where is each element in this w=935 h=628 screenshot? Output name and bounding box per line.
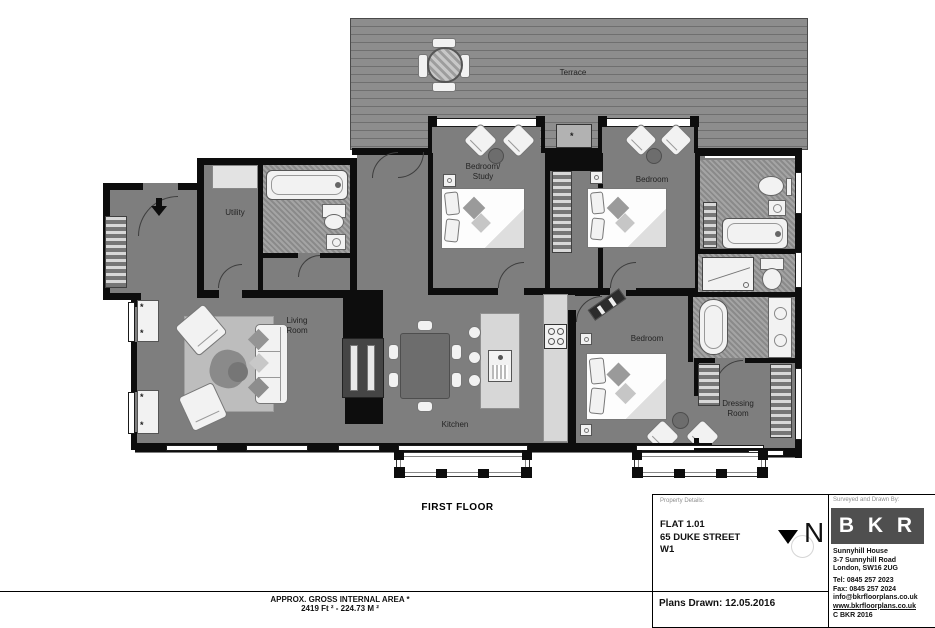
chair-icon: [388, 372, 399, 388]
bathtub-icon: [722, 218, 788, 249]
planter-icon: *: [556, 124, 592, 148]
window: [166, 445, 218, 451]
room-label-bedroom-study: Bedroom/Study: [450, 162, 516, 181]
wall: [745, 358, 800, 363]
terrace-table-top: [427, 47, 463, 83]
radiator-icon: [443, 174, 456, 187]
room-label-dressing: DressingRoom: [702, 399, 774, 418]
pillow: [444, 218, 460, 242]
address-line: Sunnyhill House: [833, 548, 933, 557]
plans-drawn: Plans Drawn: 12.05.2016: [659, 598, 809, 609]
wall: [131, 342, 137, 392]
dining-table-icon: [400, 333, 450, 399]
wall: [350, 158, 357, 298]
wall: [197, 290, 219, 298]
address-line: 3-7 Sunnyhill Road: [833, 557, 933, 566]
window-sill-plants: **: [137, 390, 159, 434]
bar-stool-icon: [468, 326, 481, 339]
terrace-table-icon: [418, 38, 472, 94]
tel: Tel: 0845 257 2023: [833, 577, 933, 586]
floor-title: FIRST FLOOR: [380, 503, 535, 513]
wall: [197, 158, 204, 298]
balcony-post: [674, 469, 685, 478]
radiator-icon: [590, 171, 603, 184]
freestanding-bathtub-icon: [699, 299, 728, 355]
chair-icon: [417, 401, 433, 412]
toilet-icon: [324, 214, 344, 230]
window: [398, 445, 528, 451]
copyright: C BKR 2016: [833, 612, 933, 619]
shower-icon: [702, 257, 754, 291]
website: www.bkrfloorplans.co.uk: [833, 603, 933, 612]
balcony-post: [521, 467, 532, 478]
room-label-bedroom-bottom: Bedroom: [612, 334, 682, 344]
wall: [178, 183, 197, 190]
wall: [688, 292, 693, 362]
kitchen-counter: [543, 294, 568, 442]
pillow: [589, 387, 607, 414]
room-label-bedroom-top: Bedroom: [620, 175, 684, 185]
bathtub-icon: [266, 170, 348, 200]
pillow: [444, 191, 460, 215]
radiator-icon: [580, 333, 592, 345]
area-line2: 2419 Ft ² - 224.73 M ²: [150, 604, 530, 613]
wall: [197, 158, 357, 165]
chair-icon: [451, 344, 462, 360]
window: [795, 368, 802, 440]
balcony-post: [394, 467, 405, 478]
balcony-post: [394, 450, 404, 460]
bay-window: [430, 118, 543, 127]
window-sill-plants: **: [137, 300, 159, 342]
toilet-cistern: [786, 178, 792, 196]
balcony-post: [716, 469, 727, 478]
sink-icon: [768, 200, 786, 216]
room-label-terrace: Terrace: [538, 68, 608, 78]
bay-window: [600, 118, 698, 127]
wall: [320, 253, 350, 258]
balcony-post: [632, 450, 642, 460]
room-label-living: LivingRoom: [268, 316, 326, 335]
flat-number: FLAT 1.01: [660, 519, 790, 532]
north-arrow-icon: N: [775, 515, 830, 555]
chair-icon: [417, 320, 433, 331]
window: [795, 172, 802, 214]
toilet-icon: [758, 176, 784, 196]
wardrobe-rail-icon: [105, 216, 127, 288]
washer-icon: [212, 165, 258, 189]
area-line1: APPROX. GROSS INTERNAL AREA *: [150, 595, 530, 604]
email: info@bkrfloorplans.co.uk: [833, 594, 933, 603]
wall: [263, 253, 298, 258]
island-sink-icon: [488, 350, 512, 382]
address-line: London, SW16 2UG: [833, 565, 933, 574]
balcony: [396, 452, 530, 477]
wall: [545, 150, 550, 288]
wall: [568, 310, 576, 450]
area-summary: APPROX. GROSS INTERNAL AREA * 2419 Ft ² …: [150, 595, 530, 613]
balcony-post: [632, 467, 643, 478]
fireplace-icon: [342, 338, 384, 398]
wall: [428, 153, 433, 288]
wardrobe-rail-icon: [552, 171, 572, 253]
fax: Fax: 0845 257 2024: [833, 586, 933, 595]
coffee-table-icon: [228, 362, 248, 382]
balcony-post: [478, 469, 489, 478]
window: [128, 302, 135, 342]
north-letter: N: [804, 517, 824, 549]
wall: [428, 288, 498, 295]
wall: [343, 290, 383, 338]
surveyor-contacts: Tel: 0845 257 2023 Fax: 0845 257 2024 in…: [833, 577, 933, 611]
info-box-border: [652, 494, 935, 495]
terrace-chair: [432, 82, 456, 92]
floor-plan-page: Terrace * Utility: [0, 0, 935, 628]
entrance-arrow-icon: [151, 198, 167, 216]
window: [338, 445, 380, 451]
pillow: [590, 191, 605, 214]
property-address: FLAT 1.01 65 DUKE STREET W1: [660, 519, 790, 557]
window: [128, 392, 135, 434]
radiator-icon: [580, 424, 592, 436]
hob-icon: [544, 324, 567, 349]
chair-icon: [451, 372, 462, 388]
vanity-icon: [768, 297, 792, 358]
sink-icon: [326, 234, 346, 250]
pillow: [590, 217, 605, 240]
surveyor-heading: Surveyed and Drawn By:: [833, 497, 933, 503]
wall: [695, 148, 802, 156]
divider: [0, 591, 828, 592]
balcony-post: [522, 450, 532, 460]
wall: [545, 148, 600, 171]
wall: [345, 398, 383, 424]
bar-stool-icon: [468, 351, 481, 364]
street: 65 DUKE STREET: [660, 532, 790, 545]
bkr-logo: B K R: [831, 508, 924, 544]
toilet-icon: [762, 268, 782, 290]
surveyor-address: Sunnyhill House 3-7 Sunnyhill Road Londo…: [833, 548, 933, 574]
wall: [626, 290, 695, 296]
wardrobe-rail-icon: [703, 202, 717, 248]
info-box-border: [652, 494, 653, 628]
balcony-post: [757, 467, 768, 478]
room-label-kitchen: Kitchen: [425, 420, 485, 430]
balcony-post: [758, 450, 768, 460]
side-table-icon: [646, 148, 662, 164]
balcony: [634, 452, 766, 477]
side-table-icon: [672, 412, 689, 429]
room-label-utility: Utility: [208, 208, 262, 218]
postcode: W1: [660, 544, 790, 557]
window: [246, 445, 308, 451]
balcony-post: [436, 469, 447, 478]
window: [795, 252, 802, 288]
bar-stool-icon: [468, 374, 481, 387]
property-details-heading: Property Details:: [660, 498, 780, 504]
chair-icon: [388, 344, 399, 360]
pillow: [589, 357, 607, 384]
wall: [575, 290, 600, 296]
